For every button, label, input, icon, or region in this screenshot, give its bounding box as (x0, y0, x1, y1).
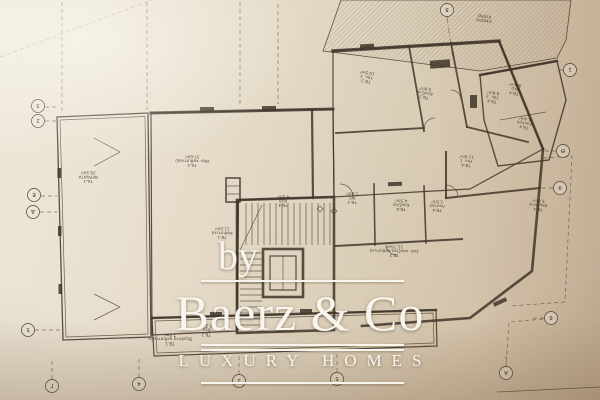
grid-reference-bubble: 1 (564, 64, 577, 77)
grid-reference-bubble: Γ (46, 380, 59, 393)
svg-text:6: 6 (549, 314, 553, 320)
svg-text:4: 4 (137, 380, 141, 386)
room-label: ΤΒ.2Βερ.5.2m² (200, 323, 213, 337)
svg-text:Δ: Δ (31, 208, 35, 214)
room-label: ΤΔ.1Βερ. καθιστικού37.0m² (174, 154, 209, 168)
room-label: ΤΒ.4Βεράντα5.8m² (528, 198, 547, 213)
svg-text:Θ: Θ (560, 147, 565, 153)
room-label: ΤΒ.2Σαλ. κουζίνα-καθιστικό21.75m² (369, 244, 419, 258)
room-label: ΤΒ.4Βερ.9.6m² (507, 82, 522, 97)
grid-reference-bubble: 8 (441, 4, 454, 17)
svg-text:5: 5 (335, 375, 339, 381)
svg-text:2: 2 (36, 117, 40, 123)
right-wing-rooms (336, 149, 572, 326)
floorplan-scan: ΟΜΟΡΟΚΤΙΡΙΟΤΔ.1ΒΕΡΑΝΤΑ28.5m²ΤΔ.1Βερ. καθ… (0, 0, 600, 400)
grid-reference-bubble: Α (500, 367, 513, 380)
svg-text:1: 1 (568, 66, 572, 72)
grid-reference-bubble: Θ (557, 145, 570, 158)
room-label: ΤΒ.1Καθιστικό12.0m² (211, 226, 233, 240)
grid-reference-bubble: Δ (27, 206, 40, 219)
elevator-shaft (263, 249, 303, 297)
grid-reference-bubble: 2 (32, 115, 45, 128)
svg-text:9: 9 (558, 184, 562, 190)
grid-reference-bubble: 6 (545, 312, 558, 325)
svg-text:8: 8 (445, 6, 449, 12)
room-label: ΤΒ.4ΧΩΛ4.0m² (276, 194, 289, 208)
grid-reference-bubble: 5 (22, 324, 35, 337)
staircase (240, 203, 330, 325)
grid-reference-bubble: 9 (554, 182, 567, 195)
room-label: ΤΔ.1ΒΕΡΑΝΤΑ28.5m² (78, 170, 98, 184)
svg-text:5: 5 (26, 326, 30, 332)
room-label: ΤΒ.4Υπν. 111.0m² (458, 154, 474, 169)
grid-reference-bubble: 2 (233, 375, 246, 388)
svg-text:3: 3 (36, 102, 40, 108)
svg-text:Α: Α (504, 369, 508, 375)
room-label: ΤΒ.3Υπν. 210.5m² (358, 69, 375, 85)
room-label: ΤΒ.4Λουτρό3.5m² (429, 199, 445, 213)
room-label: ΤΒ.4Κουζίνα4.5m² (392, 198, 409, 212)
room-label: ΤΒ.4Υπν. 39.8m² (485, 89, 501, 105)
right-terrace (480, 61, 566, 166)
grid-reference-bubble: Ε (28, 189, 41, 202)
svg-text:2: 2 (237, 377, 241, 383)
room-label: ΤΒ.4Λουτρό4.4m² (515, 115, 533, 131)
floorplan-drawing: ΟΜΟΡΟΚΤΙΡΙΟΤΔ.1ΒΕΡΑΝΤΑ28.5m²ΤΔ.1Βερ. καθ… (0, 0, 600, 400)
room-label: ΤΒ.1WC1.8m² (345, 191, 358, 205)
grid-reference-bubble: 3 (32, 100, 45, 113)
grid-reference-bubble: 4 (133, 378, 146, 391)
chimney-shaft (226, 178, 240, 202)
grid-reference-bubble: 5 (331, 373, 344, 386)
left-terrace (57, 113, 151, 340)
svg-text:Ε: Ε (32, 191, 36, 197)
